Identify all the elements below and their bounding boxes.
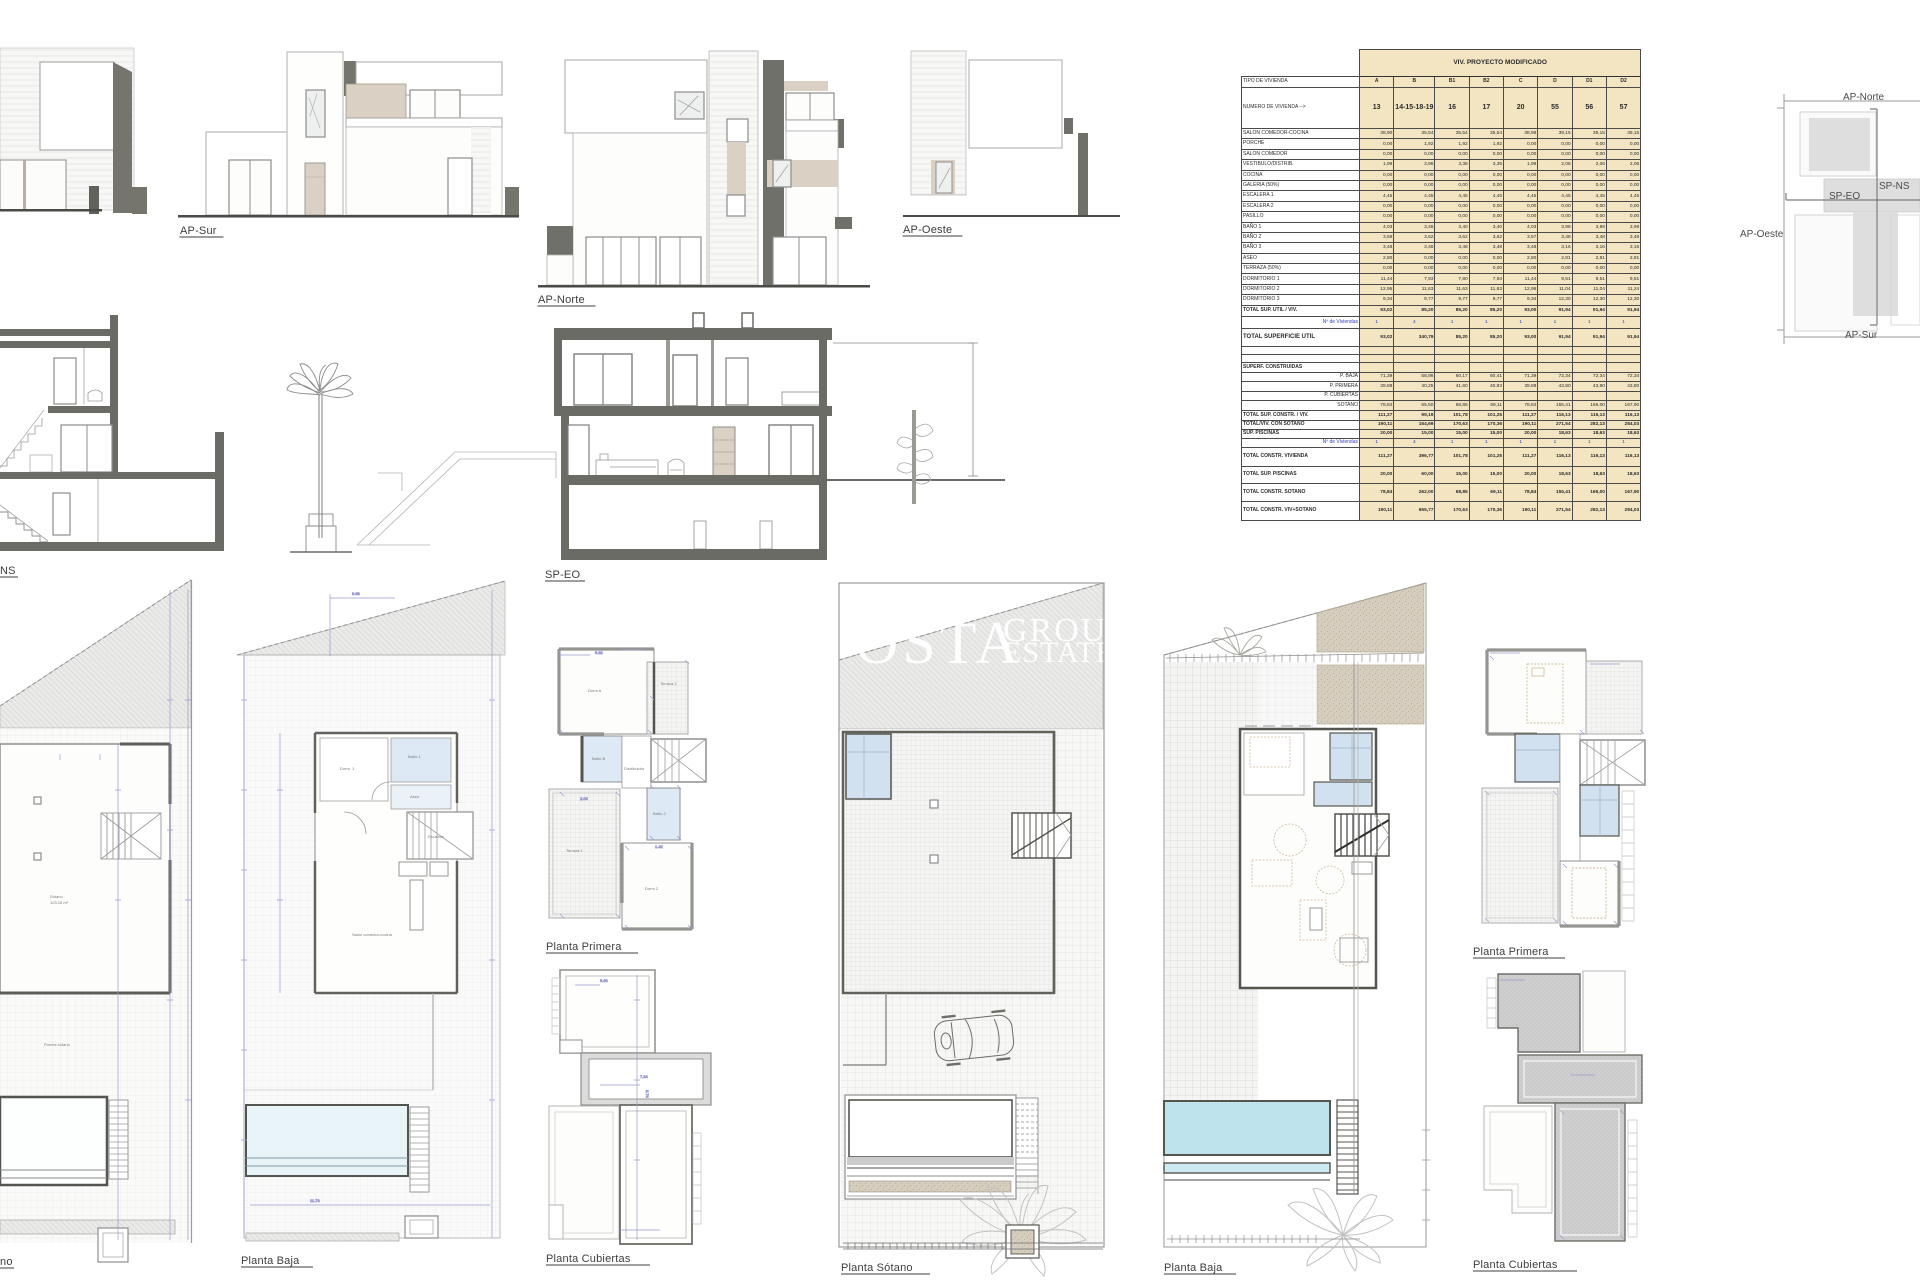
svg-text:Planta Baja: Planta Baja: [241, 1255, 300, 1267]
svg-text:AP-Sur: AP-Sur: [180, 225, 217, 237]
svg-text:Terraza 1: Terraza 1: [566, 848, 583, 853]
svg-text:Planta Primera: Planta Primera: [1473, 946, 1549, 958]
svg-text:Planta Primera: Planta Primera: [546, 941, 622, 953]
svg-text:AP-Norte: AP-Norte: [538, 294, 585, 306]
svg-text:Salón comedor-cocina: Salón comedor-cocina: [352, 932, 393, 937]
svg-text:no: no: [0, 1256, 13, 1268]
svg-text:5.82: 5.82: [595, 650, 604, 655]
svg-text:Planta Sótano: Planta Sótano: [841, 1262, 913, 1274]
svg-text:1.42: 1.42: [655, 844, 664, 849]
svg-text:SP-NS: SP-NS: [1879, 181, 1910, 192]
svg-text:2.06: 2.06: [580, 796, 589, 801]
svg-text:AP-Sur: AP-Sur: [1845, 330, 1878, 341]
svg-text:ESTATES: ESTATES: [1003, 636, 1133, 669]
svg-text:Terraza 2: Terraza 2: [660, 681, 677, 686]
svg-text:Dorm. 1: Dorm. 1: [340, 766, 355, 771]
svg-text:11.73: 11.73: [310, 1198, 320, 1203]
svg-text:Planta Cubiertas: Planta Cubiertas: [1473, 1259, 1558, 1271]
svg-text:AP-Oeste: AP-Oeste: [903, 224, 952, 236]
svg-text:Planta Cubiertas: Planta Cubiertas: [546, 1253, 631, 1265]
svg-text:Baño 1: Baño 1: [408, 754, 421, 759]
svg-text:Baño B: Baño B: [592, 756, 605, 761]
svg-text:103.18 m²: 103.18 m²: [50, 900, 69, 905]
svg-text:AP-Oeste: AP-Oeste: [1740, 229, 1784, 240]
svg-text:OSTA: OSTA: [855, 610, 1023, 676]
svg-text:Dorm A: Dorm A: [588, 688, 602, 693]
svg-text:Dorm 2: Dorm 2: [645, 886, 659, 891]
svg-text:AP-Norte: AP-Norte: [1843, 92, 1885, 103]
svg-text:Porche sótano: Porche sótano: [44, 1042, 71, 1047]
svg-text:Escalera: Escalera: [428, 834, 444, 839]
svg-text:Planta Baja: Planta Baja: [1164, 1262, 1223, 1274]
svg-text:Distribuidor: Distribuidor: [624, 766, 645, 771]
svg-text:8.74: 8.74: [645, 1090, 650, 1099]
svg-text:SP-EO: SP-EO: [545, 569, 580, 581]
svg-text:Sótano: Sótano: [50, 894, 63, 899]
svg-text:9.98: 9.98: [352, 591, 361, 596]
svg-text:7.34: 7.34: [640, 1074, 649, 1079]
svg-text:NS: NS: [0, 565, 16, 577]
svg-text:Baño 2: Baño 2: [653, 811, 666, 816]
svg-text:SP-EO: SP-EO: [1829, 191, 1860, 202]
svg-text:Aseo: Aseo: [410, 794, 420, 799]
svg-text:5.60: 5.60: [600, 978, 609, 983]
